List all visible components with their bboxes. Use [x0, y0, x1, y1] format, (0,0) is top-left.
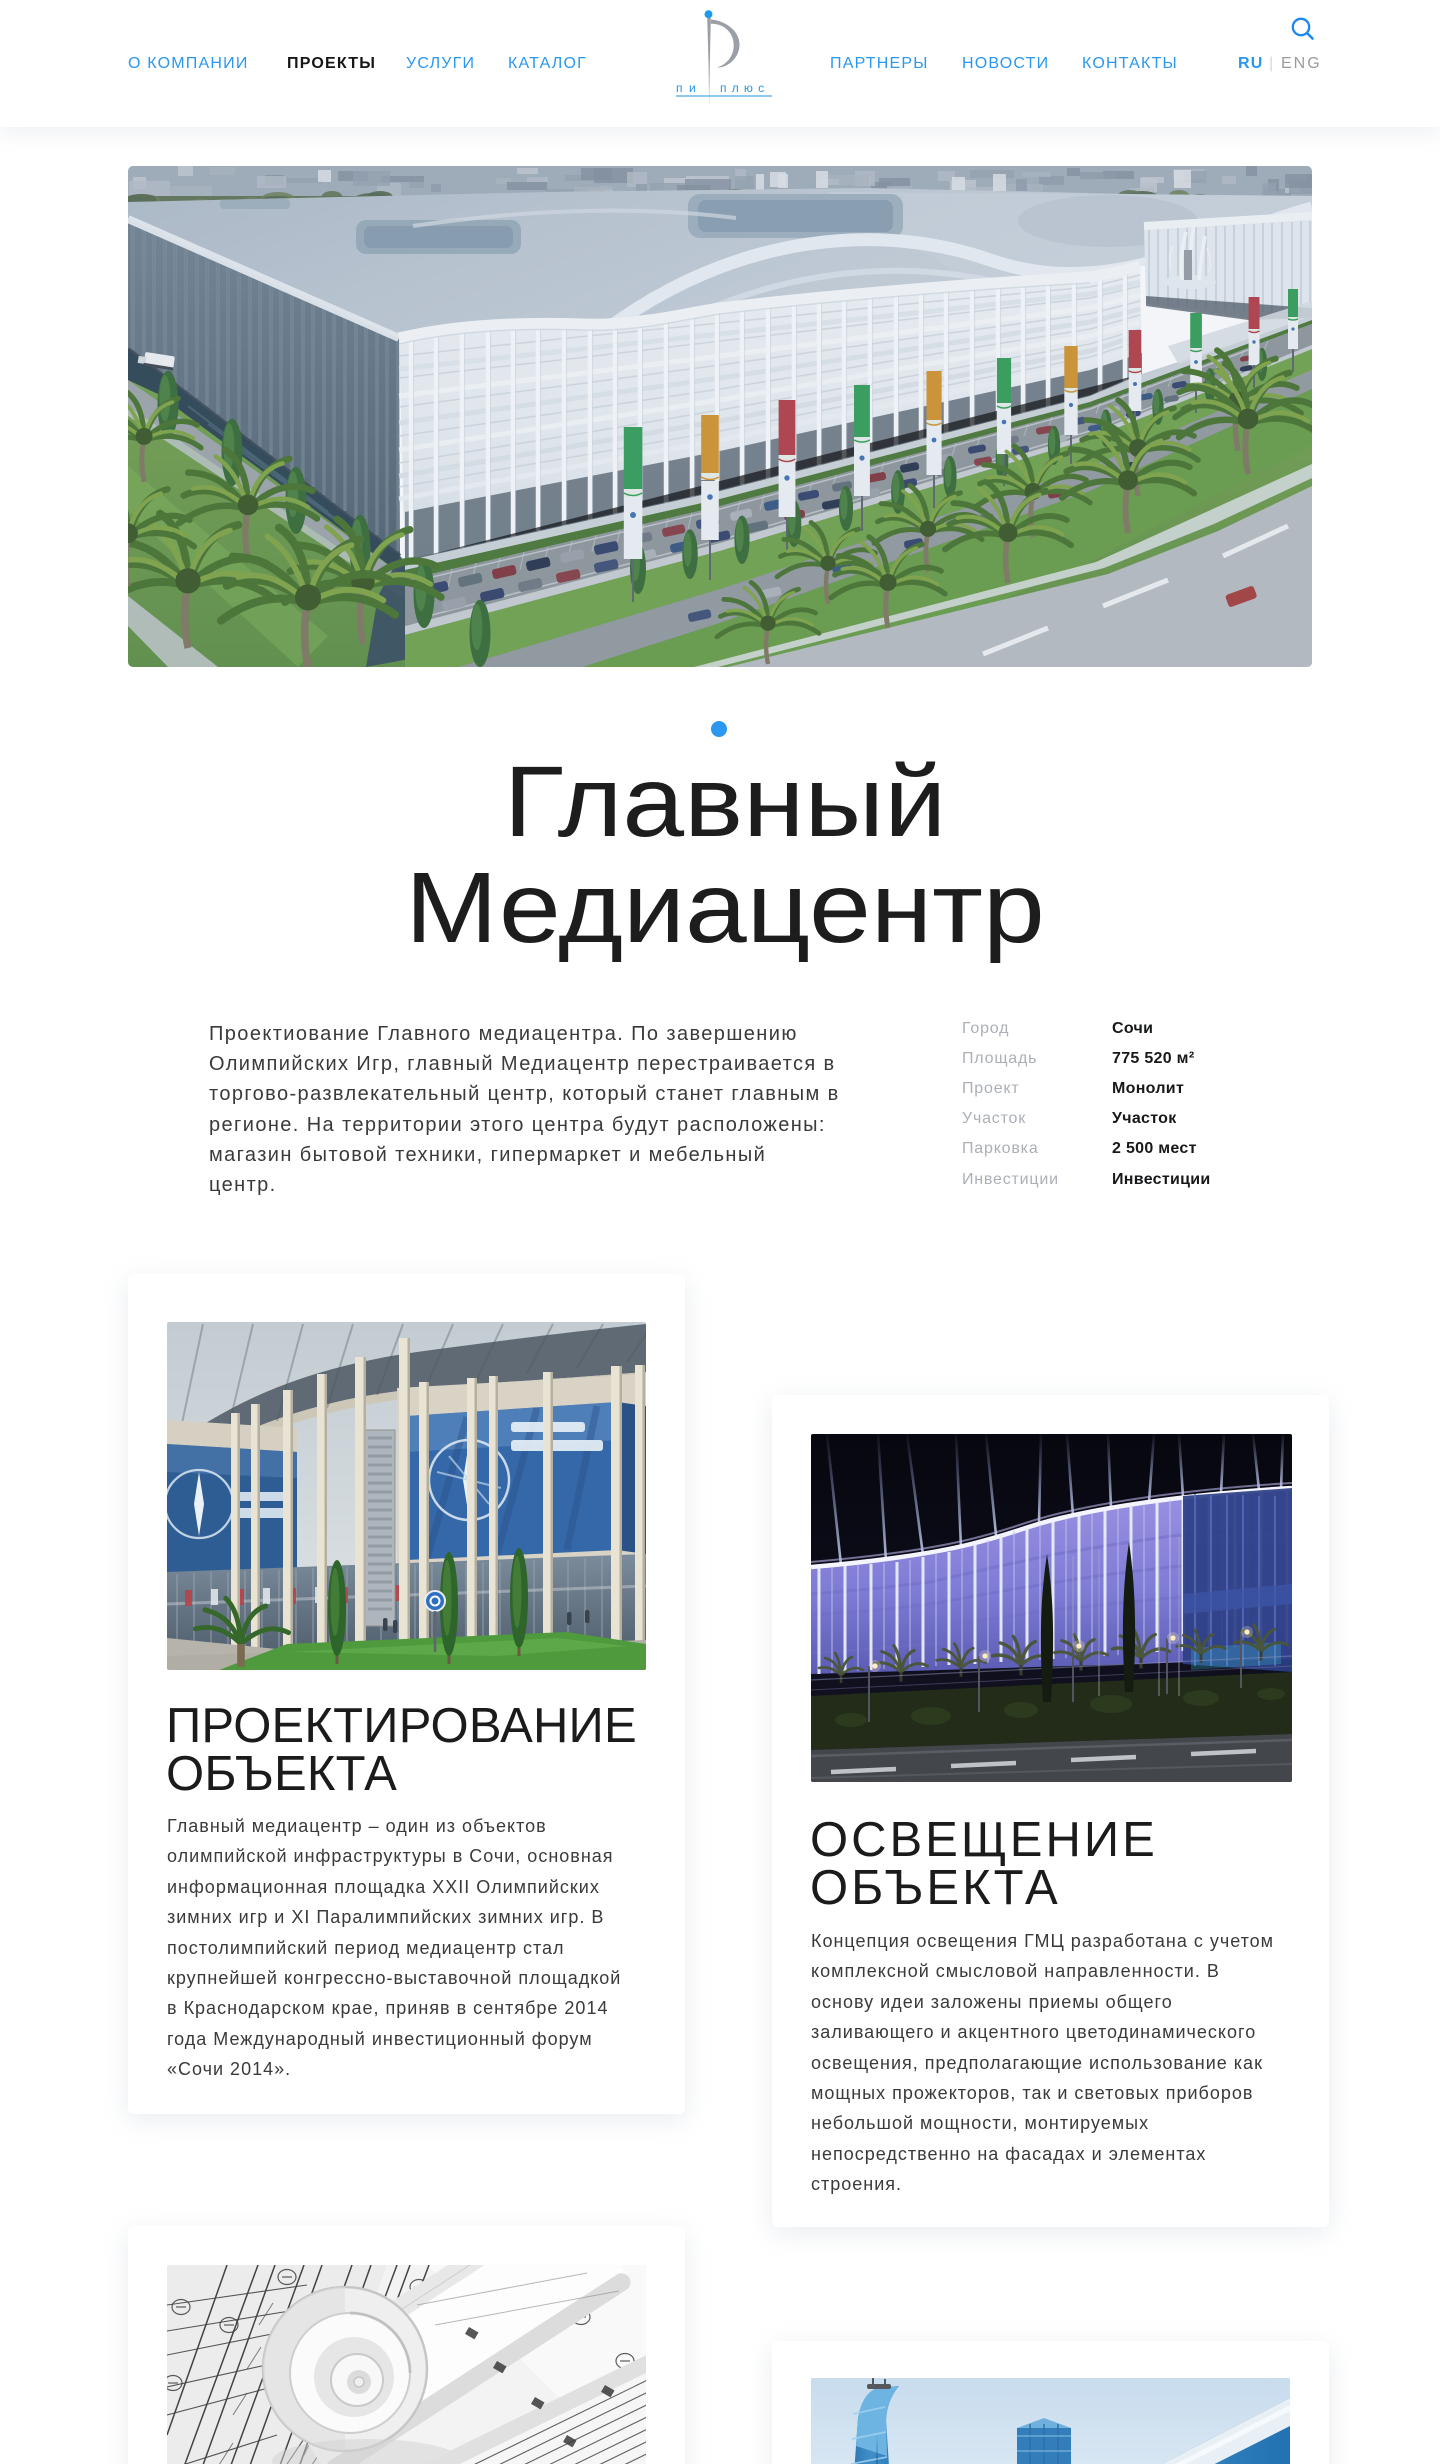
svg-text:пи: пи: [676, 81, 702, 95]
svg-text:плюс: плюс: [720, 81, 769, 95]
